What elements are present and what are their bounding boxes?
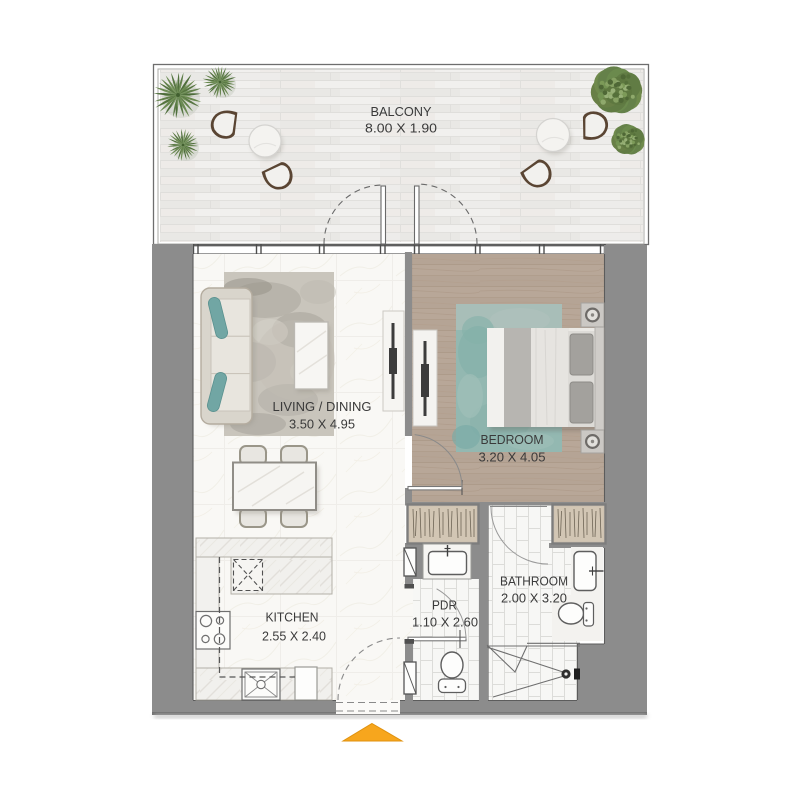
svg-text:LIVING / DINING: LIVING / DINING (273, 400, 372, 414)
svg-text:3.20 X 4.05: 3.20 X 4.05 (479, 451, 546, 465)
svg-text:KITCHEN: KITCHEN (266, 611, 319, 625)
svg-text:PDR: PDR (432, 599, 457, 613)
svg-text:BATHROOM: BATHROOM (500, 575, 568, 589)
svg-text:8.00 X 1.90: 8.00 X 1.90 (365, 122, 437, 136)
svg-text:BEDROOM: BEDROOM (481, 433, 544, 447)
svg-text:BALCONY: BALCONY (371, 105, 433, 119)
svg-text:2.55 X 2.40: 2.55 X 2.40 (262, 630, 326, 644)
svg-text:3.50 X 4.95: 3.50 X 4.95 (289, 418, 355, 432)
svg-text:1.10 X 2.60: 1.10 X 2.60 (412, 616, 478, 630)
svg-text:2.00 X 3.20: 2.00 X 3.20 (501, 592, 567, 606)
